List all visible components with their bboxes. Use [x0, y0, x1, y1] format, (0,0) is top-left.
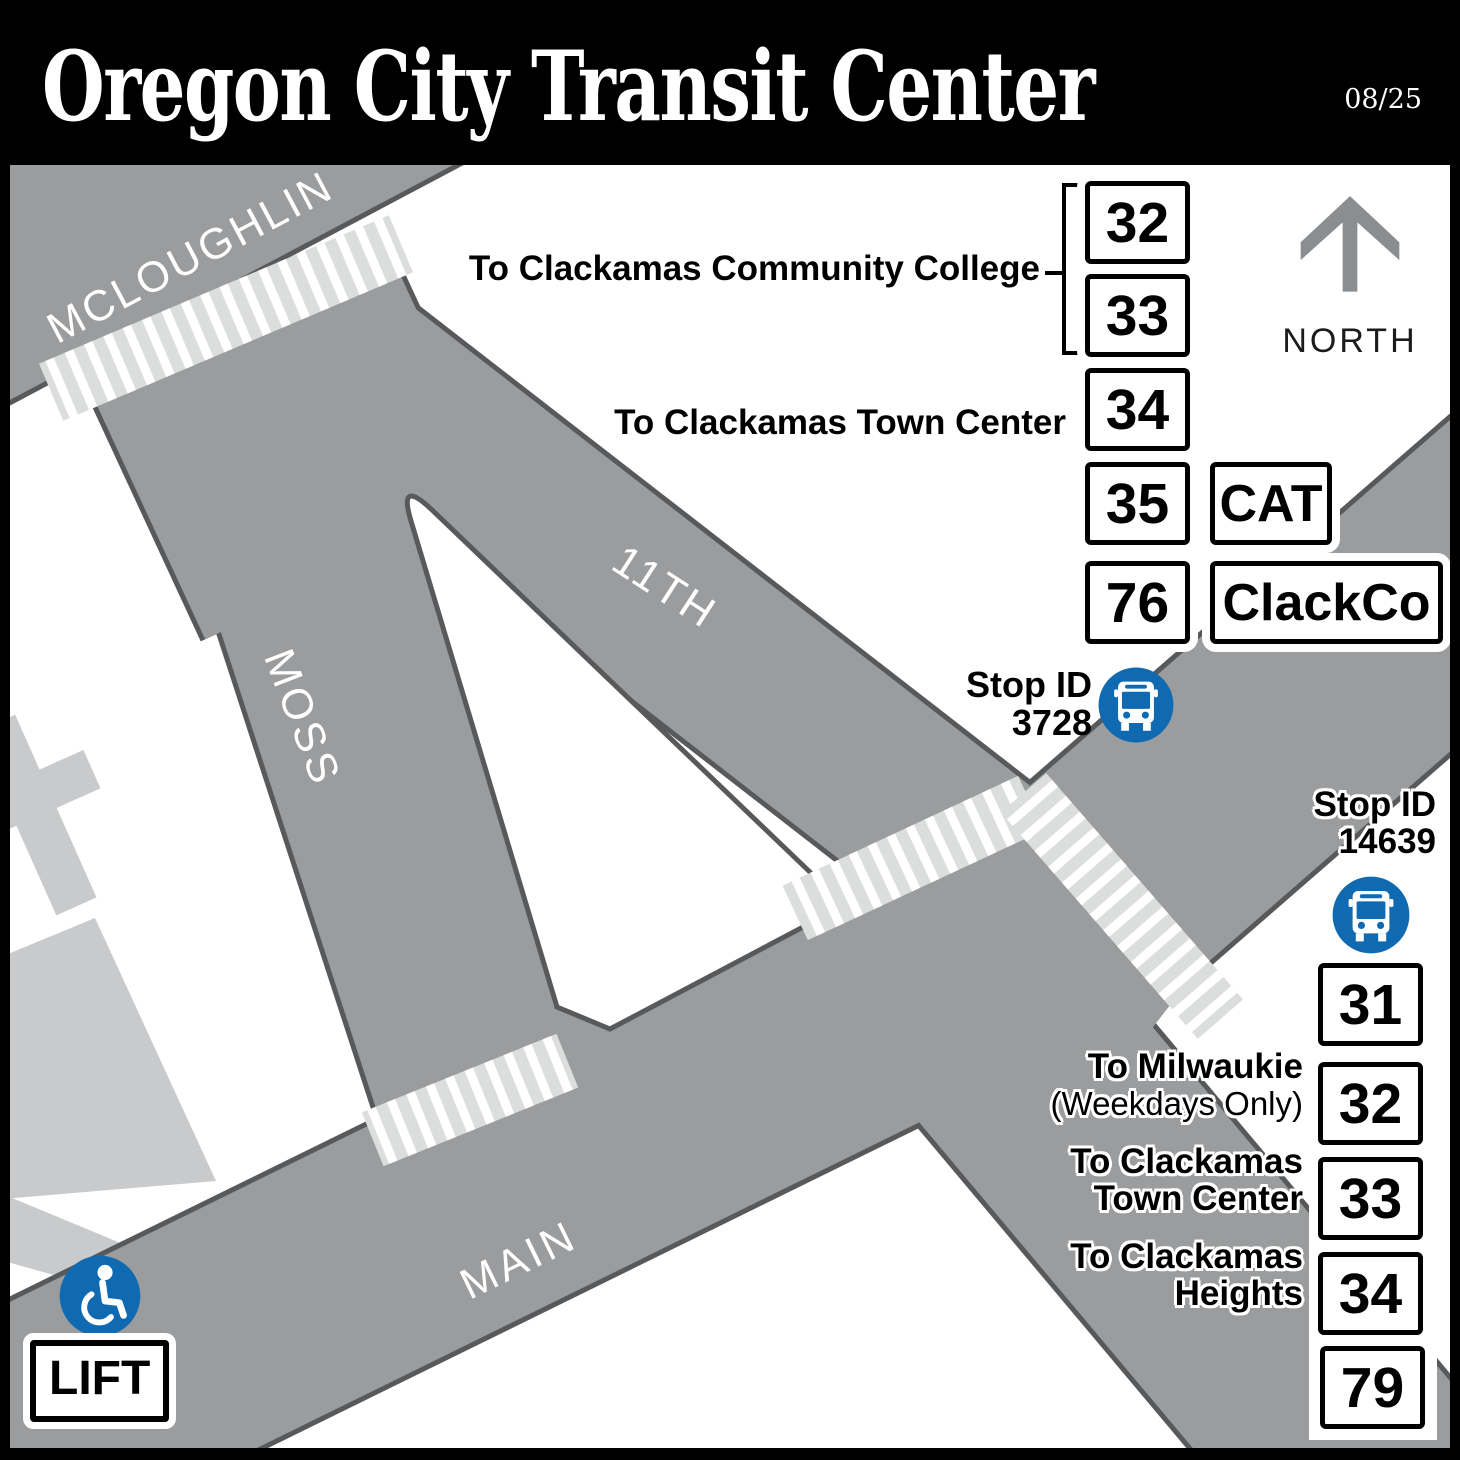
destination-line: To Clackamas	[1070, 1238, 1303, 1275]
destination-label-clackamas-town-center: To Clackamas Town Center	[1070, 1143, 1303, 1217]
destination-label-community-college: To Clackamas Community College	[469, 250, 1040, 287]
route-badge-33-south: 33	[1318, 1157, 1423, 1240]
stop-id-14639-block: Stop ID 14639	[1314, 786, 1436, 860]
route-badge-34-south: 34	[1318, 1252, 1423, 1335]
destination-line: Heights	[1070, 1275, 1303, 1312]
revision-date: 08/25	[1344, 84, 1422, 115]
stop-id-label: Stop ID	[1314, 786, 1436, 823]
stop-id-label: Stop ID	[966, 666, 1092, 704]
transit-map-sign: Oregon City Transit Center 08/25	[0, 0, 1460, 1460]
route-badge-31: 31	[1318, 963, 1423, 1046]
destination-label-town-center: To Clackamas Town Center	[614, 404, 1066, 441]
lift-badge: LIFT	[30, 1340, 169, 1422]
bus-stop-icon	[1097, 666, 1175, 744]
route-badge-32: 32	[1085, 181, 1190, 264]
destination-label-clackamas-heights: To Clackamas Heights	[1070, 1238, 1303, 1312]
destination-line: To Milwaukie	[1051, 1048, 1303, 1085]
route-badge-33: 33	[1085, 274, 1190, 357]
stop-id-3728-block: Stop ID 3728	[966, 666, 1092, 742]
agency-badge-clackco: ClackCo	[1210, 561, 1443, 644]
destination-label-milwaukie: To Milwaukie (Weekdays Only)	[1051, 1048, 1303, 1122]
page-title: Oregon City Transit Center	[42, 30, 1094, 143]
map-area: MCLOUGHLIN MOSS 11TH MAIN NORTH To Clack…	[10, 165, 1450, 1448]
bracket-tick-bottom	[1062, 351, 1079, 355]
route-badge-34: 34	[1085, 368, 1190, 451]
bracket-tick-mid	[1045, 271, 1062, 275]
stop-id-number: 3728	[966, 704, 1092, 742]
wheelchair-accessible-icon	[58, 1254, 142, 1338]
north-label: NORTH	[1280, 322, 1420, 361]
route-badge-35: 35	[1085, 462, 1190, 545]
route-badge-76: 76	[1085, 561, 1190, 644]
header-bar: Oregon City Transit Center 08/25	[0, 0, 1460, 165]
agency-badge-cat: CAT	[1210, 462, 1332, 545]
bus-stop-icon	[1331, 875, 1411, 955]
north-arrow-icon	[1295, 194, 1405, 299]
destination-line: (Weekdays Only)	[1051, 1085, 1303, 1122]
route-badge-32-south: 32	[1318, 1062, 1423, 1145]
stop-id-number: 14639	[1314, 823, 1436, 860]
bracket-line	[1062, 183, 1066, 355]
route-badge-79: 79	[1320, 1346, 1425, 1429]
bracket-tick-top	[1062, 183, 1079, 187]
destination-line: Town Center	[1070, 1180, 1303, 1217]
destination-line: To Clackamas	[1070, 1143, 1303, 1180]
